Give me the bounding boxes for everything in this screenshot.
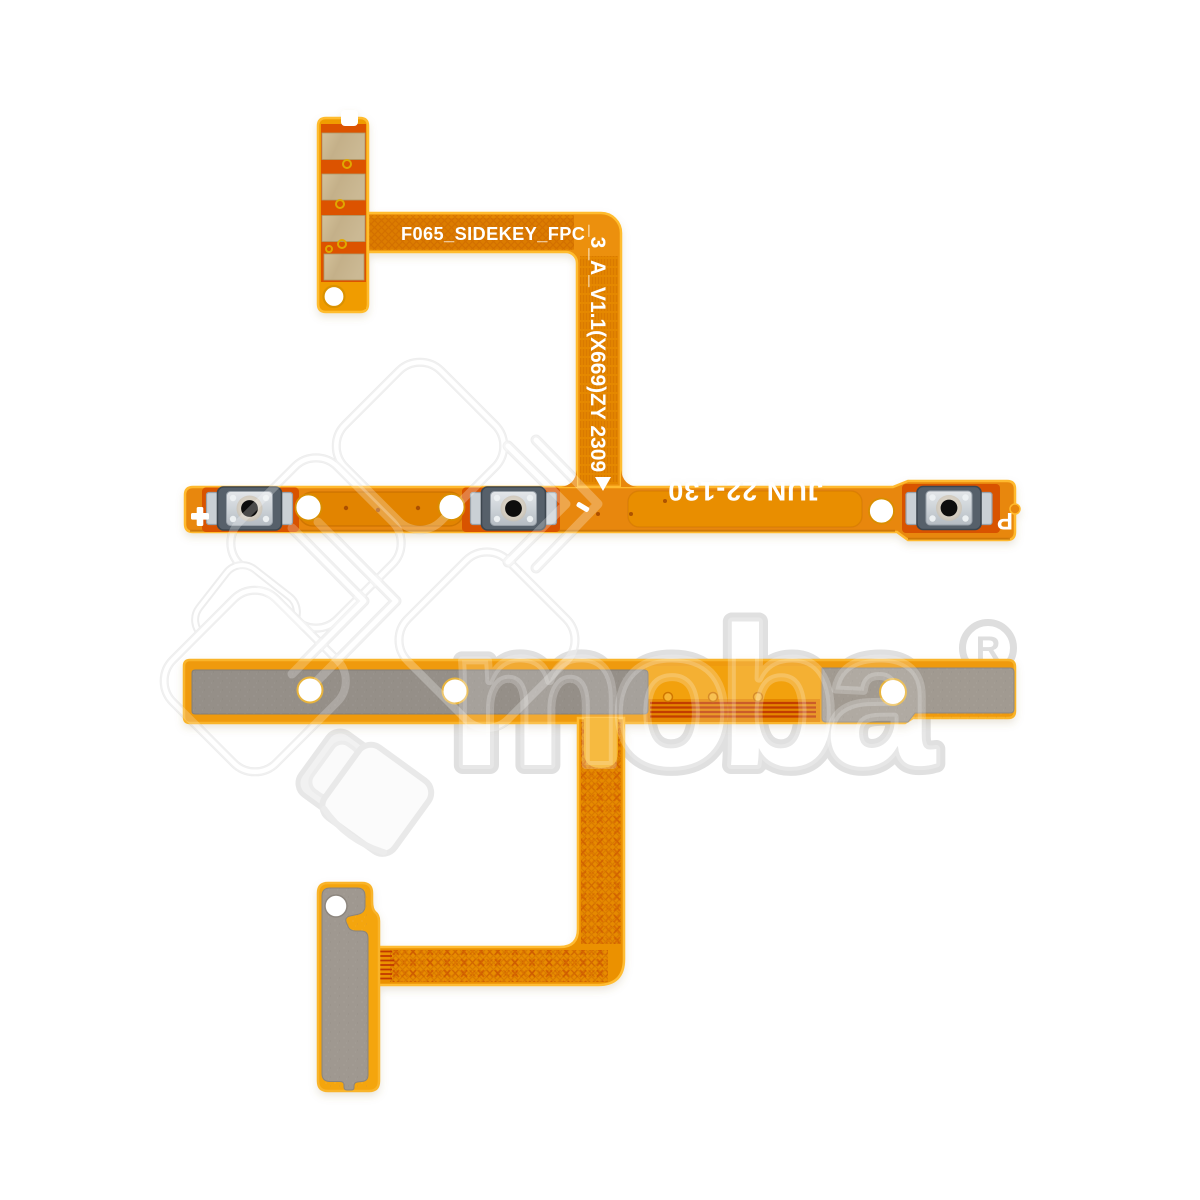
svg-text:P: P — [997, 507, 1013, 534]
svg-text:JUN 22-130: JUN 22-130 — [667, 476, 823, 506]
svg-text:F065_SIDEKEY_FPC: F065_SIDEKEY_FPC — [401, 224, 585, 244]
svg-text:_3_A_V1.1(X669)ZY 2309: _3_A_V1.1(X669)ZY 2309 — [586, 224, 609, 472]
svg-text:moba: moba — [449, 586, 937, 807]
